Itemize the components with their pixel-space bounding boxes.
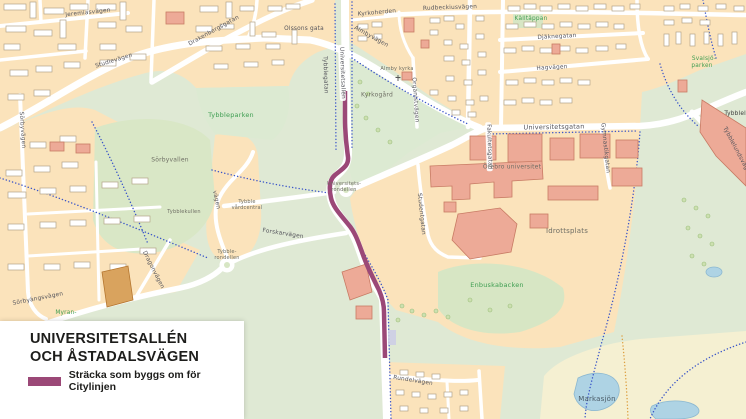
universitets-rondellen-center: [343, 187, 349, 193]
almby-kyrka-building: [402, 72, 412, 80]
map-screenshot: JeremiasvägenDrakenbergsgatanStudievägen…: [0, 0, 746, 419]
lake-south: [650, 401, 699, 419]
route-swatch: [28, 377, 61, 386]
map-title: UNIVERSITETSALLÉN OCH ÅSTADALSVÄGEN: [30, 330, 199, 366]
pond-east: [706, 267, 722, 277]
road-minor-13: [40, 0, 41, 22]
legend-row: Sträcka som byggs om för Citylinjen: [28, 369, 244, 393]
tybble-rondellen-center: [224, 262, 230, 268]
map-title-line1: UNIVERSITETSALLÉN: [30, 330, 199, 348]
road-minor-7: [447, 382, 449, 419]
road-minor-5: [501, 0, 503, 127]
bus-stop-marker: [388, 330, 396, 345]
legend-card: UNIVERSITETSALLÉN OCH ÅSTADALSVÄGEN Strä…: [0, 321, 244, 419]
tan-building: [102, 266, 133, 307]
map-title-line2: OCH ÅSTADALSVÄGEN: [30, 348, 199, 366]
legend-label: Sträcka som byggs om för Citylinjen: [69, 369, 244, 393]
